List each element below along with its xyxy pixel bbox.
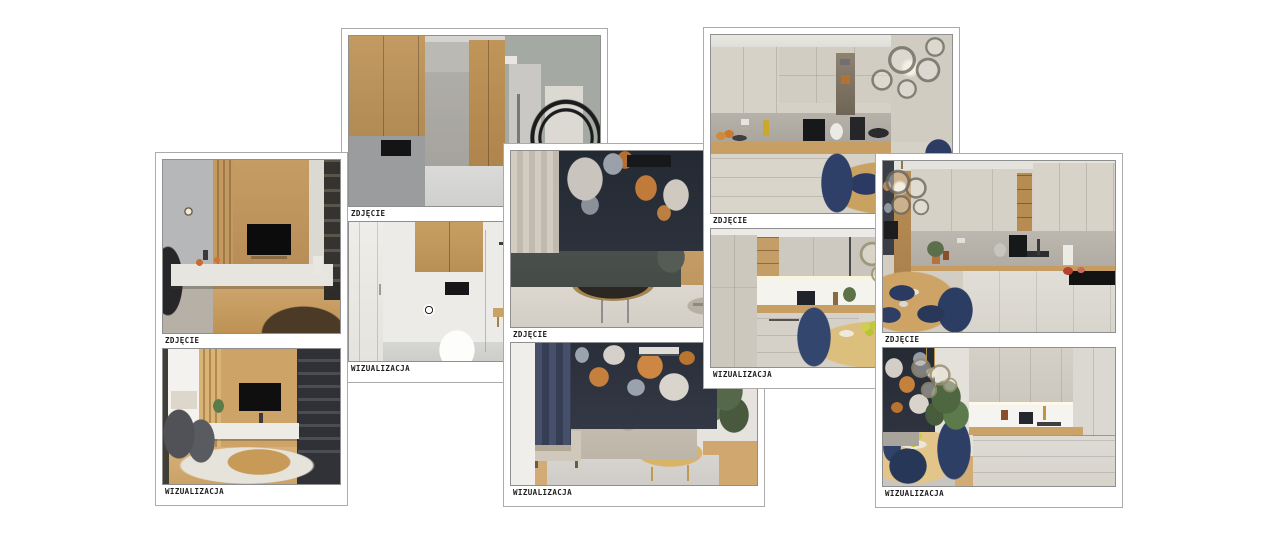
- living-room-photo: [162, 159, 341, 334]
- photo-vs-visualization-collage: ZDJĘCIE WIZUALIZACJA ZDJĘCIE WIZUALIZACJ…: [0, 0, 1280, 536]
- photo-label: ZDJĘCIE: [882, 333, 1116, 347]
- visualization-label: WIZUALIZACJA: [510, 486, 758, 500]
- comparison-card-living-room: ZDJĘCIE WIZUALIZACJA: [155, 152, 348, 506]
- visualization-label: WIZUALIZACJA: [162, 485, 341, 499]
- corner-kitchen-visualization: [882, 347, 1116, 487]
- visualization-label: WIZUALIZACJA: [882, 487, 1116, 501]
- corner-kitchen-photo: [882, 160, 1116, 333]
- photo-label: ZDJĘCIE: [162, 334, 341, 348]
- comparison-card-kitchen-corner: ZDJĘCIE WIZUALIZACJA: [875, 153, 1123, 508]
- living-room-visualization: [162, 348, 341, 485]
